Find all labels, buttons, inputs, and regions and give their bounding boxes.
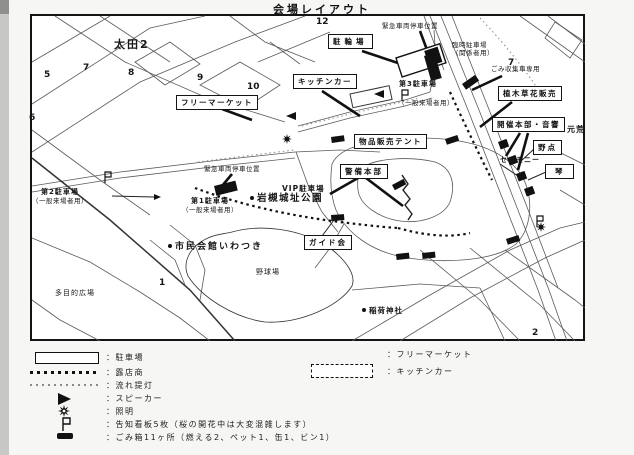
location-dot bbox=[168, 244, 172, 248]
legend-label-kitchen-car: ：キッチンカー bbox=[387, 366, 454, 377]
label-iwatsuki-castle-park: 岩槻城址公園 bbox=[250, 193, 323, 205]
map-number: 2 bbox=[532, 328, 538, 339]
map-number: 5 bbox=[44, 70, 50, 81]
map-number: 8 bbox=[128, 68, 134, 79]
legend-label-sign: ：告知看板5枚（桜の開花中は大変混雑します） bbox=[106, 419, 312, 430]
legend-kitchen-car-symbol bbox=[311, 364, 373, 378]
map-number: 1 bbox=[159, 278, 165, 289]
scanned-venue-layout-page: 会場レイアウト bbox=[0, 0, 634, 455]
map-graphics bbox=[30, 14, 585, 341]
box-koto: 琴 bbox=[545, 164, 574, 179]
legend-label-lantern: ：流れ提灯 bbox=[106, 380, 154, 391]
label-temp-parking: 臨時駐車場（関係者用） bbox=[452, 41, 494, 57]
trash-bin-markers bbox=[331, 135, 535, 260]
legend-label-trash: ：ごみ箱11ヶ所（燃える2、ペット1、缶1、ビン1） bbox=[106, 432, 335, 443]
label-emergency-stop-top: 緊急車両停車位置 bbox=[382, 22, 438, 30]
legend-label-light: ：照明 bbox=[106, 406, 135, 417]
box-goods-tent: 物品販売テント bbox=[354, 134, 427, 149]
legend-lantern-symbol bbox=[30, 384, 100, 386]
sign-flag-icons bbox=[105, 90, 543, 227]
label-ceremony: セレモニー bbox=[500, 156, 540, 165]
box-security-hq: 警備本部 bbox=[340, 164, 388, 179]
legend-street-vendor-symbol bbox=[30, 371, 100, 374]
box-bicycle-parking: 駐輪場 bbox=[328, 34, 373, 49]
label-emergency-stop-mid: 緊急車両停車位置 bbox=[204, 165, 260, 173]
label-parking2-note: （一般来場者用） bbox=[32, 197, 88, 205]
box-flea-market: フリーマーケット bbox=[176, 95, 258, 110]
map-number: 7 bbox=[83, 63, 89, 74]
label-civic-hall: 市民会館いわつき bbox=[168, 242, 263, 253]
legend-parking-symbol bbox=[35, 352, 99, 364]
legend-label-speaker: ：スピーカー bbox=[106, 393, 163, 404]
legend-sign-flag-icon bbox=[60, 417, 72, 432]
label-district-ota2: 太田2 bbox=[114, 38, 150, 52]
legend-light-icon bbox=[57, 404, 71, 418]
box-kitchen-car: キッチンカー bbox=[293, 74, 357, 89]
arrowhead bbox=[154, 194, 161, 200]
legend-label-flea-market: ：フリーマーケット bbox=[387, 349, 473, 360]
box-hq-audio: 開催本部・音響 bbox=[492, 117, 565, 132]
box-plant-flower-sales: 植木草花販売 bbox=[498, 86, 562, 101]
label-vip-parking: VIP駐車場 bbox=[282, 184, 325, 193]
page-edge-shadow bbox=[0, 0, 9, 455]
label-inari-shrine: 稲荷神社 bbox=[362, 306, 403, 315]
legend-label-parking: ：駐車場 bbox=[106, 352, 144, 363]
label-parking1: 第1駐車場 bbox=[191, 197, 229, 206]
thin-leader-lines bbox=[112, 149, 546, 236]
label-parking3-note: （一般来場者用） bbox=[398, 99, 454, 107]
box-guide-society: ガイド会 bbox=[304, 235, 352, 250]
location-dot bbox=[362, 308, 366, 312]
label-multipurpose-plaza: 多目的広場 bbox=[55, 289, 95, 298]
label-parking1-note: （一般来場者用） bbox=[182, 206, 238, 214]
label-parking3: 第3駐車場 bbox=[399, 80, 437, 89]
label-baseball-field: 野球場 bbox=[256, 268, 280, 277]
label-garbage-truck: ごみ収集車専用 bbox=[491, 65, 540, 73]
map-number: 10 bbox=[247, 82, 260, 93]
map-number: 12 bbox=[316, 17, 329, 28]
page-edge-corner bbox=[0, 0, 9, 14]
legend-trash-bin-symbol bbox=[57, 433, 73, 439]
legend-label-street-vendor: ：露店商 bbox=[106, 367, 144, 378]
location-dot bbox=[250, 196, 254, 200]
map-number: 6 bbox=[29, 113, 35, 124]
map-number: 9 bbox=[197, 73, 203, 84]
label-moto-arakawa: 元荒 bbox=[567, 125, 585, 135]
box-nodate: 野点 bbox=[533, 140, 562, 155]
label-parking2: 第2駐車場 bbox=[41, 188, 79, 197]
